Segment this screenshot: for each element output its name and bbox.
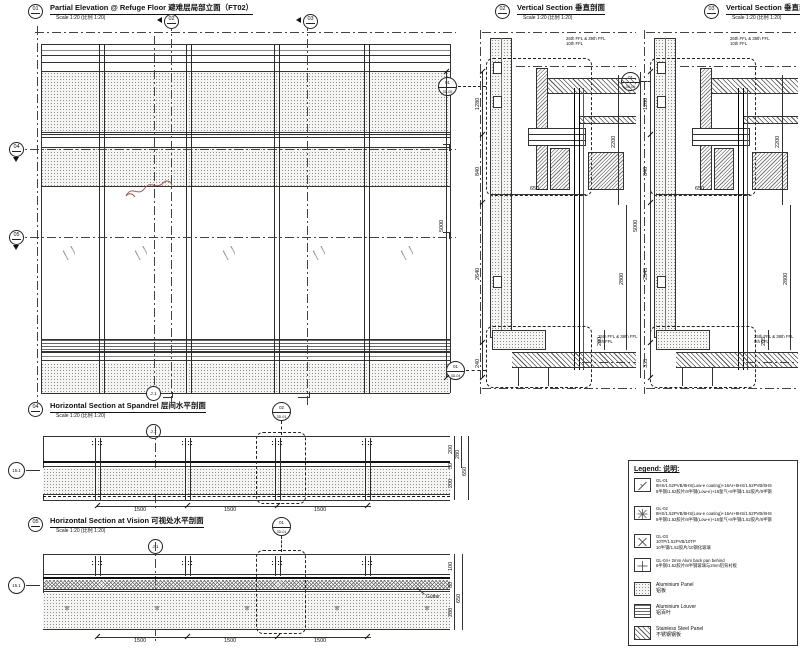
ffl-line-bottom bbox=[582, 362, 636, 363]
legend-item: GL-03 10TP/1.52PVB/10TP 10半钢/1.52胶片/10钢化… bbox=[656, 534, 711, 550]
dim-right: 200 bbox=[449, 445, 455, 454]
spandrel-cavity-panel bbox=[43, 468, 450, 495]
dim-width: 650 bbox=[695, 187, 704, 193]
legend-material-cn: 铝百叶 bbox=[656, 610, 671, 616]
ffl-line-top bbox=[680, 66, 798, 67]
dim-total: 5000 bbox=[440, 220, 446, 232]
dim-right-top: 2200 bbox=[612, 136, 618, 148]
drawing-04-number-bubble: 04 bbox=[28, 402, 43, 417]
callout-sheet-ref: 3D-04 bbox=[447, 371, 464, 380]
grid-bubble-151: 15.1 bbox=[8, 462, 25, 479]
mullion-section bbox=[185, 556, 191, 576]
glass-symbol bbox=[401, 246, 413, 260]
section-top-grid-line bbox=[646, 32, 798, 33]
grid-line-left bbox=[37, 26, 38, 402]
slab-support-line bbox=[712, 368, 713, 386]
drawing-sheet: 01 Partial Elevation @ Refuge Floor 避难层局… bbox=[0, 0, 800, 652]
dim-right-top: 2200 bbox=[776, 136, 782, 148]
cut-marker-03-label: 03 bbox=[307, 16, 313, 22]
callout-leader-line bbox=[466, 370, 486, 371]
outer-face-line bbox=[43, 554, 450, 555]
ffl-text: 25th FFL & 38th FFL bbox=[754, 334, 794, 339]
glass-symbol bbox=[223, 246, 235, 260]
dimension-line bbox=[482, 72, 483, 378]
legend-spec-en: 8HS/1.52PVB/8HS(Low-e coating)+16Ar+8HS/… bbox=[656, 511, 772, 516]
cut-marker-05-label: 05 bbox=[13, 232, 19, 238]
insulation-strip bbox=[550, 148, 570, 190]
dim-right: 200 bbox=[449, 608, 455, 617]
callout-number: 01 bbox=[273, 518, 290, 527]
glass-symbol-gl02 bbox=[635, 508, 650, 520]
section-cut-line-03 bbox=[307, 22, 308, 406]
floor-slab-hatch bbox=[512, 352, 636, 368]
floor-slab-hatch bbox=[676, 352, 798, 368]
drawing-02-number: 02 bbox=[499, 6, 505, 12]
legend-item: Stainless Steel Panel 不锈钢钢板 bbox=[656, 626, 703, 639]
ffl-text: 25th FFL & 38th FFL bbox=[598, 334, 638, 339]
revision-mark-squiggle bbox=[123, 176, 175, 200]
slab-arrow-icon bbox=[64, 606, 70, 611]
dimension-line bbox=[446, 72, 447, 378]
callout-number: 02 bbox=[273, 403, 290, 412]
legend-item: Aluminium Panel 铝板 bbox=[656, 582, 694, 595]
section-grid-line bbox=[644, 30, 645, 394]
ffl-text: 10th FFL bbox=[566, 41, 583, 46]
mullion-bolts bbox=[181, 440, 194, 446]
legend-swatch-gl03 bbox=[634, 534, 651, 548]
callout-number: 01 bbox=[447, 362, 464, 371]
drawing-04-scale: Scale 1:20 (比例 1:20) bbox=[56, 412, 105, 419]
drawing-05-scale: Scale 1:20 (比例 1:20) bbox=[56, 527, 105, 534]
spandrel-insulation bbox=[492, 330, 546, 350]
mullion bbox=[364, 44, 370, 393]
inner-face-line bbox=[43, 500, 450, 501]
detail-callout-bubble: 01 3D-04 bbox=[446, 361, 465, 380]
elevation-left-edge bbox=[41, 44, 42, 393]
slab-ledge-hatch bbox=[744, 116, 798, 124]
dim-seg3: 2640 bbox=[476, 268, 482, 280]
dim-right-bottom: 2800 bbox=[784, 273, 790, 285]
mullion-section bbox=[95, 438, 101, 500]
section-cut-marker-05: 05 bbox=[9, 230, 24, 245]
slab-support-line bbox=[682, 368, 683, 386]
drawing-02-scale: Scale 1:20 (比例 1:20) bbox=[523, 14, 572, 21]
cut-marker-03-arrow-icon bbox=[296, 17, 301, 23]
drawing-04-number: 04 bbox=[32, 404, 38, 410]
grid-bubble-151: 15.1 bbox=[8, 577, 25, 594]
mullion-section bbox=[365, 438, 371, 500]
section-bottom-grid-line bbox=[482, 388, 636, 389]
dim-right: 100 bbox=[449, 562, 455, 571]
section-cut-line-04 bbox=[13, 149, 456, 150]
slab-support-line bbox=[548, 368, 549, 386]
dim-bay: 1500 bbox=[134, 508, 146, 514]
legend-item: Aluminium Louver 铝百叶 bbox=[656, 604, 696, 617]
dim-seg1: 1280 bbox=[476, 98, 482, 110]
grid-j1-label: J.1 bbox=[150, 391, 156, 396]
dim-width: 650 bbox=[530, 187, 539, 193]
drawing-01-number-bubble: 01 bbox=[28, 4, 43, 19]
legend-item: GL-02 8HS/1.52PVB/8HS(Low-e coating)+16A… bbox=[656, 506, 772, 522]
ffl-line-top bbox=[516, 66, 636, 67]
dimension-line bbox=[490, 194, 586, 195]
ffl-text: 10th FFL bbox=[730, 41, 747, 46]
section-top-grid-line bbox=[482, 32, 636, 33]
ffl-text: 9th FFL bbox=[598, 339, 613, 344]
legend-swatch-aluminium-panel bbox=[634, 582, 651, 596]
slab-arrow-icon bbox=[334, 606, 340, 611]
mullion bbox=[186, 44, 192, 393]
dim-bay: 1500 bbox=[224, 508, 236, 514]
cut-line-03-bottom-bracket bbox=[309, 392, 310, 398]
legend-swatch-gl01 bbox=[634, 478, 651, 492]
dim-right: 280 bbox=[456, 450, 462, 459]
dim-right: 80 bbox=[449, 582, 455, 588]
dimension-line bbox=[462, 554, 463, 630]
mullion-section bbox=[95, 556, 101, 576]
dim-seg4: 335 bbox=[644, 359, 650, 368]
glass-face-line bbox=[43, 577, 450, 579]
dim-seg1: 1280 bbox=[644, 98, 650, 110]
cut-marker-02-label: 02 bbox=[168, 16, 174, 22]
dim-bay: 1500 bbox=[314, 639, 326, 645]
dim-seg2: 840 bbox=[644, 167, 650, 176]
dimension-line bbox=[790, 205, 791, 350]
section-cut-line-05 bbox=[13, 237, 456, 238]
dimension-line bbox=[650, 72, 651, 378]
mullion-bolts bbox=[91, 560, 104, 566]
insulation-strip bbox=[714, 148, 734, 190]
wall-embed bbox=[493, 276, 502, 288]
glass-symbol bbox=[135, 246, 147, 260]
drawing-05-number: 05 bbox=[32, 519, 38, 525]
floor-slab-hatch bbox=[712, 78, 798, 94]
callout-sheet-ref: 3D-01 bbox=[273, 527, 290, 536]
legend-code: GL-01 bbox=[656, 478, 668, 483]
gutter-label: Gutter bbox=[426, 595, 440, 600]
section-bottom-grid-line bbox=[646, 388, 798, 389]
legend-spec-cn: 8半钢/1.52胶片/8半钢玻璃与2mm铝背衬板 bbox=[656, 563, 737, 568]
dim-bay: 1500 bbox=[224, 639, 236, 645]
cut-line-05-end-bracket bbox=[449, 232, 450, 239]
detail-boundary bbox=[256, 432, 306, 504]
dimension-line bbox=[640, 72, 641, 378]
grid-j1-bracket bbox=[172, 392, 173, 398]
legend-item: GL-04+ 2mm Alum back pan behind 8半钢/1.52… bbox=[656, 558, 737, 569]
section-grid-line bbox=[480, 30, 481, 394]
detail-callout-bubble: 01 3D-01 bbox=[272, 517, 291, 536]
ffl-text: 26th FFL & 39th FFL bbox=[730, 36, 770, 41]
elevation-drawing bbox=[35, 30, 456, 396]
legend-panel: Legend: 说明: GL-01 8HS/1.52PVB/8HS(Low-e … bbox=[628, 460, 798, 646]
ffl-label-bottom: 25th FFL & 38th FFL 9th FFL bbox=[754, 334, 794, 345]
ffl-label-top: 26th FFL & 39th FFL 10th FFL bbox=[730, 36, 770, 47]
callout-sheet-ref: 3D-05 bbox=[439, 87, 456, 96]
legend-code: GL-02 bbox=[656, 506, 668, 511]
glass-symbol-gl03 bbox=[635, 536, 650, 548]
mullion-bolts bbox=[361, 560, 374, 566]
glass-line bbox=[43, 574, 450, 575]
dimension-line bbox=[626, 205, 627, 350]
drawing-03-scale: Scale 1:20 (比例 1:20) bbox=[732, 14, 781, 21]
dim-bay: 1500 bbox=[314, 508, 326, 514]
dimension-line bbox=[618, 75, 619, 205]
horizontal-section-spandrel-drawing: 1500 1500 1500 200 50 200 280 650 bbox=[38, 428, 458, 512]
ffl-text: 26th FFL & 39th FFL bbox=[566, 36, 606, 41]
dimension-line bbox=[656, 194, 750, 195]
callout-number: 01 bbox=[439, 78, 456, 87]
dim-right: 200 bbox=[449, 479, 455, 488]
drawing-01-number: 01 bbox=[32, 6, 38, 12]
mullion-section bbox=[365, 556, 371, 576]
panel-face-line bbox=[43, 461, 450, 463]
legend-material-cn: 铝板 bbox=[656, 588, 666, 594]
drawing-03-number: 03 bbox=[708, 6, 714, 12]
ffl-line-bottom bbox=[746, 362, 798, 363]
section-cut-marker-04: 04 bbox=[9, 142, 24, 157]
elevation-top-boundary-line bbox=[35, 32, 456, 33]
panel-back-line bbox=[43, 466, 450, 467]
cut-marker-02-arrow-icon bbox=[157, 17, 162, 23]
cut-marker-04-arrow-icon bbox=[13, 157, 19, 162]
slab-edge-line bbox=[43, 591, 450, 592]
legend-title: Legend: 说明: bbox=[634, 464, 680, 474]
cut-marker-05-arrow-icon bbox=[13, 245, 19, 250]
wall-embed bbox=[657, 276, 666, 288]
legend-swatch-stainless-steel-panel bbox=[634, 626, 651, 640]
ffl-label-top: 26th FFL & 39th FFL 10th FFL bbox=[566, 36, 606, 47]
mullion bbox=[274, 44, 280, 393]
grid-bubble-j1: J.1 bbox=[146, 386, 161, 401]
section-cut-line-02 bbox=[171, 22, 172, 406]
dim-total: 5000 bbox=[634, 220, 640, 232]
legend-spec-cn: 8半钢/1.52胶片/8半钢(Low-e)+16氩气+8半钢/1.52胶片/8半… bbox=[656, 489, 772, 494]
legend-spec-en: 8HS/1.52PVB/8HS(Low-e coating)+16Ar+8HS/… bbox=[656, 483, 772, 488]
legend-material-cn: 不锈钢钢板 bbox=[656, 632, 681, 638]
cut-line-04-end-bracket bbox=[449, 144, 450, 151]
slab-ledge-hatch bbox=[580, 116, 636, 124]
slab-arrow-icon bbox=[154, 606, 160, 611]
detail-callout-bubble: 01 3D-05 bbox=[438, 77, 457, 96]
grid-line-j1 bbox=[154, 36, 155, 400]
section-cut-marker-02: 02 bbox=[164, 14, 179, 29]
mullion-bolts bbox=[181, 560, 194, 566]
section-cut-marker-03: 03 bbox=[303, 14, 318, 29]
ffl-text: 9th FFL bbox=[754, 339, 769, 344]
glass-symbol bbox=[63, 246, 75, 260]
dim-right: 50 bbox=[449, 463, 455, 469]
drawing-01-scale: Scale 1:20 (比例 1:20) bbox=[56, 14, 105, 21]
hidden-glass-line bbox=[43, 496, 450, 497]
dim-right: 650 bbox=[463, 467, 469, 476]
floor-slab-plan bbox=[43, 593, 450, 630]
legend-swatch-gl04 bbox=[634, 558, 651, 572]
cut-marker-04-label: 04 bbox=[13, 144, 19, 150]
gutter-band bbox=[43, 580, 450, 590]
legend-spec-cn: 8半钢/1.52胶片/8半钢(Low-e)+16氩气+8半钢/1.52胶片/8半… bbox=[656, 517, 772, 522]
horizontal-section-vision-drawing: 1500 1500 1500 100 80 200 650 Gutter bbox=[38, 548, 458, 646]
outer-face-line bbox=[43, 436, 450, 437]
mullion-section bbox=[185, 438, 191, 500]
floor-slab-hatch bbox=[548, 78, 636, 94]
slab-support-line bbox=[518, 368, 519, 386]
mullion-bolts bbox=[91, 440, 104, 446]
legend-code: GL-03 bbox=[656, 534, 668, 539]
elevation-right-edge bbox=[450, 44, 451, 393]
legend-spec-cn: 10半钢/1.52胶片/10钢化玻璃 bbox=[656, 545, 711, 550]
spandrel-insulation bbox=[656, 330, 710, 350]
drawing-05-number-bubble: 05 bbox=[28, 517, 43, 532]
glass-symbol-gl04 bbox=[635, 560, 650, 572]
dim-seg4: 240 bbox=[476, 359, 482, 368]
mullion bbox=[99, 44, 105, 393]
drawing-02-number-bubble: 02 bbox=[495, 4, 510, 19]
glass-symbol bbox=[313, 246, 325, 260]
dimension-line bbox=[782, 75, 783, 205]
dim-seg2: 840 bbox=[476, 167, 482, 176]
detail-callout-bubble: 02 3D-01 bbox=[272, 402, 291, 421]
glass-symbol-gl01 bbox=[635, 480, 650, 492]
grid-151-label: 15.1 bbox=[12, 583, 20, 588]
callout-sheet-ref: 3D-01 bbox=[273, 412, 290, 421]
dim-right: 650 bbox=[457, 594, 463, 603]
legend-swatch-gl02 bbox=[634, 506, 651, 520]
drawing-03-number-bubble: 03 bbox=[704, 4, 719, 19]
dim-bay: 1500 bbox=[134, 639, 146, 645]
ffl-label-bottom: 25th FFL & 38th FFL 9th FFL bbox=[598, 334, 638, 345]
grid-151-label: 15.1 bbox=[12, 468, 20, 473]
mullion-bolts bbox=[361, 440, 374, 446]
legend-spec-en: 10TP/1.52PVB/10TP bbox=[656, 539, 696, 544]
legend-swatch-aluminium-louver bbox=[634, 604, 651, 618]
slab-arrow-icon bbox=[424, 606, 430, 611]
detail-boundary bbox=[256, 550, 306, 634]
slab-arrow-icon bbox=[244, 606, 250, 611]
dim-right-bottom: 2800 bbox=[620, 273, 626, 285]
dim-seg3: 2545 bbox=[644, 268, 650, 280]
legend-item: GL-01 8HS/1.52PVB/8HS(Low-e coating)+16A… bbox=[656, 478, 772, 494]
